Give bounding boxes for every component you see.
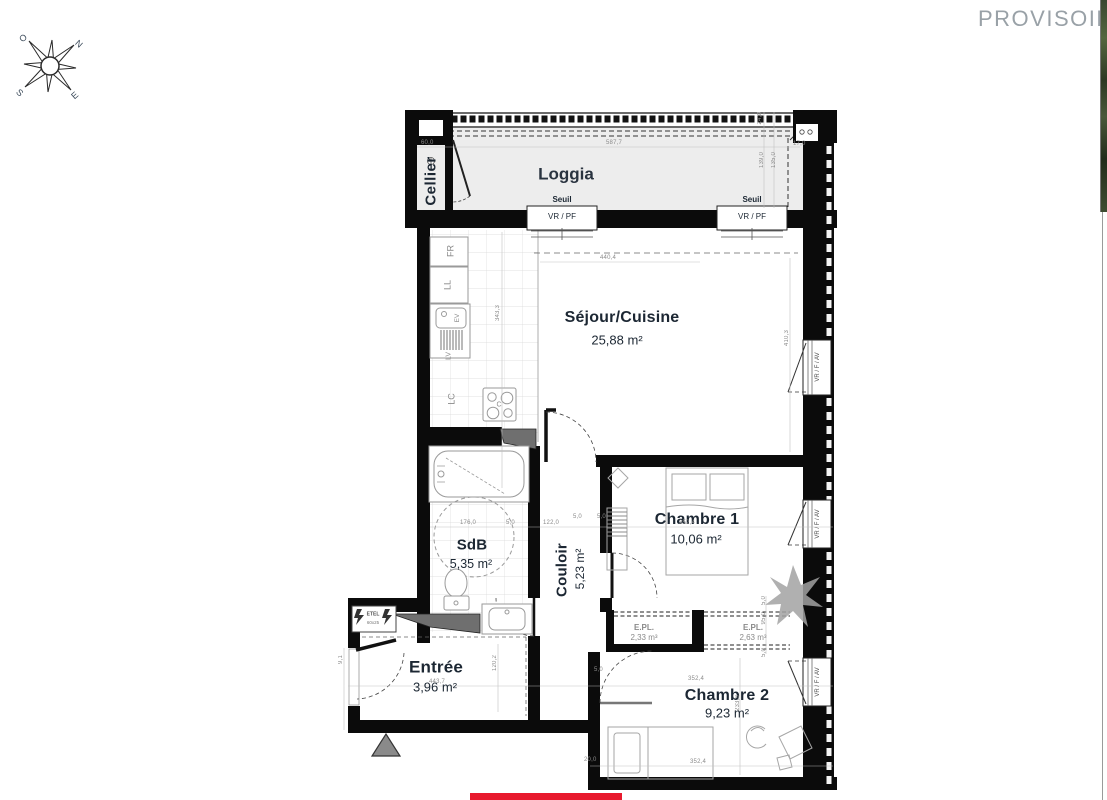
dimension-label: 60,0 [421,140,433,146]
room-label-chambre1: Chambre 1 [655,512,740,528]
bottom-red-bar [470,793,622,800]
seuil-label-1: Seuil [552,196,571,204]
dimension-label: 24,0 [757,112,763,124]
dimension-label: 352,4 [679,520,695,526]
room-area-sdb: 5,35 m² [450,558,492,571]
seuil-label-2: Seuil [742,196,761,204]
window-label-vr-f-av-2: VR / F / AV [815,509,821,538]
appliance-label-lc: LC [448,393,457,405]
dimension-label: 233,3 [735,695,741,711]
dimension-label: 5,0 [573,514,582,520]
dimension-label: 20,0 [584,757,596,763]
sink-bowl [436,308,466,328]
dimension-label: 139,0 [759,152,765,168]
dimension-label: 122,0 [543,520,559,526]
desk-chair [746,726,766,748]
electrical-panel-size: 60x25 [367,621,379,626]
dimension-label: 352,4 [688,676,704,682]
appliance-label-fridge: FR [447,245,456,257]
closet-area-2: 2,63 m³ [739,634,766,642]
dimension-label: 5,0 [761,648,767,657]
single-bed [608,727,713,779]
entrance-marker [372,734,400,756]
appliance-label-sink: EV [455,314,462,323]
window-label-vr-pf-2: VR / PF [738,213,766,221]
room-label-cellier: Cellier [424,156,439,205]
floorplan-drawing [0,0,1107,800]
dimension-label: 5,0 [597,514,606,520]
dimension-label: 120,2 [492,655,498,671]
dimension-label: 352,4 [690,759,706,765]
closet-label-2: E.PL. [743,624,763,632]
room-label-entree: Entrée [409,659,463,676]
closet-area-1: 2,33 m³ [630,634,657,642]
room-area-chambre2: 9,23 m² [705,707,749,720]
window-label-vr-f-av-1: VR / F / AV [815,352,821,381]
dimension-label: 9,1 [338,655,344,664]
appliance-label-cooktop: C [496,402,501,409]
dimension-label: 5,0 [594,667,603,673]
dimension-label: 176,0 [460,520,476,526]
dimension-label: 135,0 [771,152,777,168]
dimension-label: 440,4 [600,255,616,261]
room-label-chambre2: Chambre 2 [685,688,770,704]
railing-hatch [450,113,795,127]
room-area-chambre1: 10,06 m² [670,533,721,546]
bedroom2-furniture [608,726,812,779]
electrical-panel-label: ETEL [367,613,380,618]
dimension-label: 343,3 [495,305,501,321]
room-area-couloir: 5,23 m² [574,549,586,590]
room-label-sdb: SdB [457,538,488,553]
room-label-couloir: Couloir [555,543,570,597]
dimension-label: 410,3 [784,330,790,346]
window-label-vr-f-av-3: VR / F / AV [815,667,821,696]
dimension-label: 17,0 [793,141,805,147]
appliance-label-washer: LL [444,280,453,290]
dimension-label: 95,0 [761,612,767,624]
dimension-label: 443,7 [429,679,445,685]
appliance-label-dishwasher: LV [446,352,453,360]
window-label-vr-pf-1: VR / PF [548,213,576,221]
room-label-sejour: Séjour/Cuisine [565,310,680,326]
dimension-label: 587,7 [606,140,622,146]
room-label-loggia: Loggia [538,166,594,183]
closet-label-1: E.PL. [634,624,654,632]
faucet [442,312,447,317]
dimension-label: 5,0 [761,596,767,605]
dimension-label: 5,0 [506,520,515,526]
floorplan-page: PROVISOIRE O N S E [0,0,1107,800]
room-area-sejour: 25,88 m² [591,334,642,347]
toilet [445,569,467,597]
